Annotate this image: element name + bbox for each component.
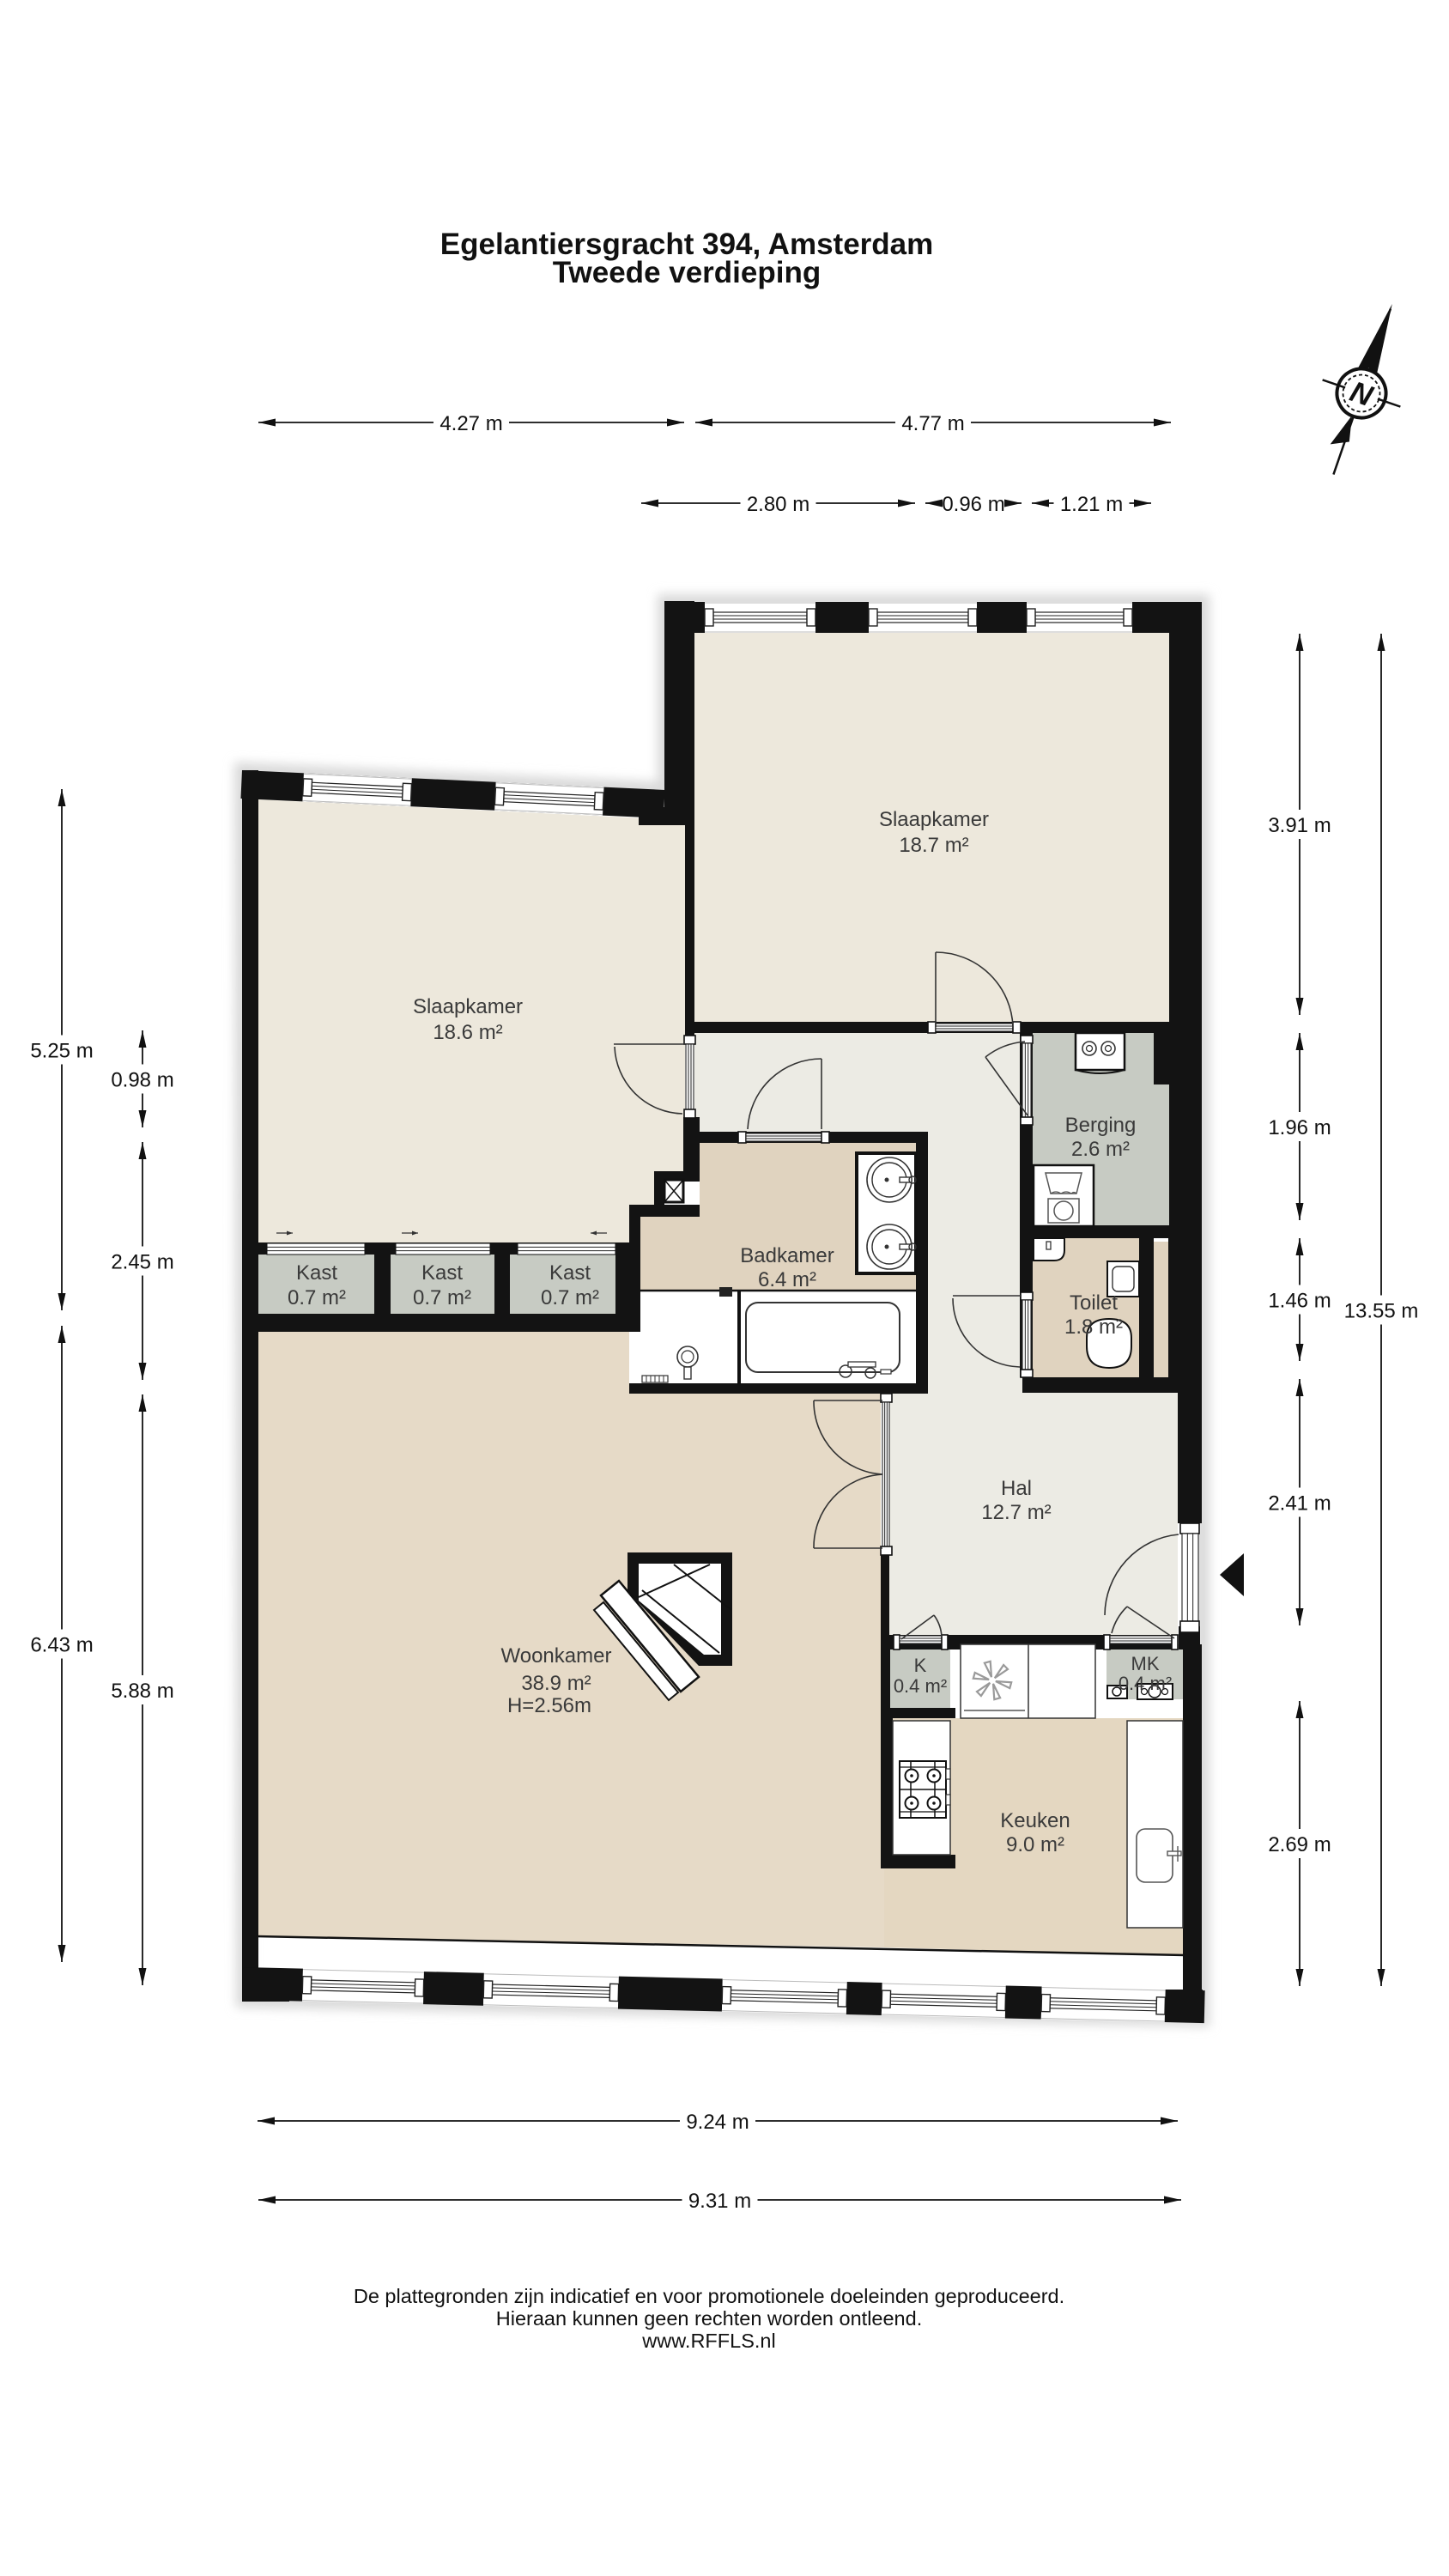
svg-text:13.55 m: 13.55 m [1344, 1300, 1419, 1323]
svg-text:Slaapkamer: Slaapkamer [879, 808, 989, 831]
svg-text:4.27 m: 4.27 m [440, 412, 502, 435]
svg-text:1.96 m: 1.96 m [1268, 1116, 1331, 1139]
svg-text:MK: MK [1131, 1653, 1160, 1674]
svg-text:0.7 m²: 0.7 m² [288, 1286, 346, 1309]
svg-text:Kast: Kast [421, 1261, 463, 1285]
svg-text:Berging: Berging [1065, 1114, 1137, 1137]
svg-text:5.25 m: 5.25 m [30, 1040, 93, 1063]
svg-text:0.7 m²: 0.7 m² [541, 1286, 599, 1309]
svg-text:Woonkamer: Woonkamer [501, 1644, 612, 1668]
svg-text:H=2.56m: H=2.56m [507, 1694, 591, 1717]
svg-text:1.21 m: 1.21 m [1060, 493, 1123, 516]
svg-text:1.8 m²: 1.8 m² [1064, 1315, 1123, 1339]
svg-text:Kast: Kast [549, 1261, 591, 1285]
svg-text:De plattegronden zijn indicati: De plattegronden zijn indicatief en voor… [354, 2285, 1064, 2307]
svg-text:K: K [914, 1655, 927, 1676]
svg-text:Hal: Hal [1001, 1477, 1032, 1500]
svg-text:3.91 m: 3.91 m [1268, 814, 1331, 837]
svg-text:6.43 m: 6.43 m [30, 1634, 93, 1657]
svg-text:4.77 m: 4.77 m [901, 412, 964, 435]
svg-text:0.98 m: 0.98 m [111, 1069, 173, 1092]
svg-text:2.69 m: 2.69 m [1268, 1833, 1331, 1856]
svg-text:2.45 m: 2.45 m [111, 1251, 173, 1274]
svg-text:0.4 m²: 0.4 m² [1119, 1673, 1172, 1694]
svg-text:0.7 m²: 0.7 m² [413, 1286, 471, 1309]
svg-text:18.7 m²: 18.7 m² [899, 834, 968, 857]
svg-text:9.0 m²: 9.0 m² [1006, 1833, 1064, 1856]
svg-text:Badkamer: Badkamer [740, 1244, 834, 1267]
svg-text:0.96 m: 0.96 m [942, 493, 1004, 516]
svg-text:18.6 m²: 18.6 m² [433, 1021, 502, 1044]
svg-text:Kast: Kast [296, 1261, 337, 1285]
svg-text:6.4 m²: 6.4 m² [758, 1268, 816, 1291]
svg-text:0.4 m²: 0.4 m² [894, 1675, 947, 1697]
svg-text:9.24 m: 9.24 m [686, 2111, 749, 2134]
svg-text:9.31 m: 9.31 m [688, 2190, 751, 2213]
svg-text:38.9 m²: 38.9 m² [521, 1672, 591, 1695]
svg-text:Toilet: Toilet [1070, 1291, 1118, 1315]
svg-text:www.RFFLS.nl: www.RFFLS.nl [641, 2330, 775, 2352]
svg-text:2.80 m: 2.80 m [747, 493, 809, 516]
svg-text:Tweede verdieping: Tweede verdieping [553, 256, 822, 289]
svg-text:12.7 m²: 12.7 m² [981, 1501, 1051, 1524]
svg-text:2.6 m²: 2.6 m² [1071, 1138, 1130, 1161]
svg-text:Hieraan kunnen geen rechten wo: Hieraan kunnen geen rechten worden ontle… [496, 2307, 922, 2330]
svg-text:1.46 m: 1.46 m [1268, 1290, 1331, 1313]
svg-text:Keuken: Keuken [1000, 1809, 1070, 1832]
svg-text:5.88 m: 5.88 m [111, 1680, 173, 1703]
svg-text:Slaapkamer: Slaapkamer [413, 995, 523, 1018]
svg-text:2.41 m: 2.41 m [1268, 1492, 1331, 1516]
